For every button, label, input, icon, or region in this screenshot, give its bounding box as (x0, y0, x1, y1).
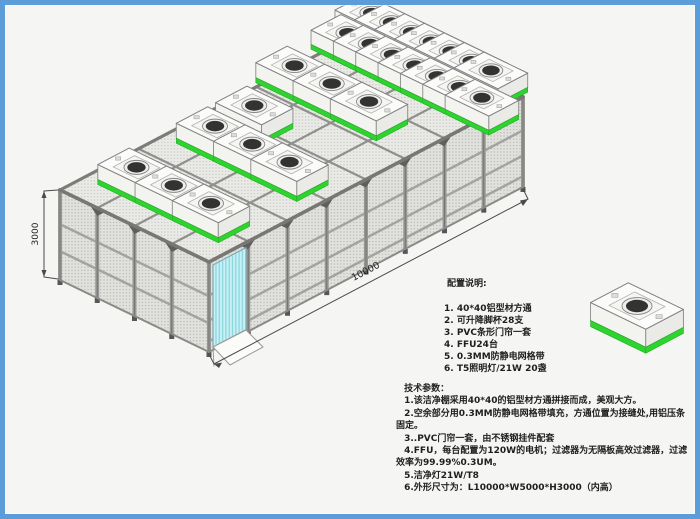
tech-params-title: 技术参数： (396, 383, 691, 395)
config-notes: 配置说明: 1. 40*40铝型材方通2. 可升降脚杯28支3. PVC条形门帘… (444, 278, 614, 375)
tech-item-6: 6.外形尺寸为：L10000*W5000*H3000（内高） (396, 482, 691, 494)
tech-item-5: 5.洁净灯21W/T8 (396, 470, 691, 482)
config-item-3: 3. PVC条形门帘一套 (444, 327, 614, 339)
drawing-canvas: 300010000 配置说明: 1. 40*40铝型材方通2. 可升降脚杯28支… (0, 0, 700, 519)
config-item-4: 4. FFU24台 (444, 339, 614, 351)
tech-item-1: 1.该洁净棚采用40*40的铝型材方通拼接而成，美观大方。 (396, 395, 691, 407)
tech-item-3: 3..PVC门帘一套，由不锈钢挂件配套 (396, 433, 691, 445)
tech-params: 技术参数： 1.该洁净棚采用40*40的铝型材方通拼接而成，美观大方。2.空余部… (396, 383, 691, 495)
tech-params-list: 1.该洁净棚采用40*40的铝型材方通拼接而成，美观大方。2.空余部分用0.3M… (396, 395, 691, 494)
tech-item-2: 2.空余部分用0.3MM防静电网格带填充，方通位置为接缝处,用铝压条固定。 (396, 408, 691, 433)
config-notes-list: 1. 40*40铝型材方通2. 可升降脚杯28支3. PVC条形门帘一套4. F… (444, 303, 614, 375)
config-item-5: 5. 0.3MM防静电网格带 (444, 351, 614, 363)
height-dimension-label: 3000 (31, 222, 41, 245)
tech-item-4: 4.FFU，每台配置为120W的电机；过滤器为无隔板高效过滤器，过滤效率为99.… (396, 445, 691, 470)
config-item-2: 2. 可升降脚杯28支 (444, 315, 614, 327)
config-item-1: 1. 40*40铝型材方通 (444, 303, 614, 315)
config-item-6: 6. T5照明灯/21W 20盏 (444, 363, 614, 375)
config-notes-title: 配置说明: (447, 278, 614, 290)
dimension-height: 3000 (31, 190, 58, 279)
